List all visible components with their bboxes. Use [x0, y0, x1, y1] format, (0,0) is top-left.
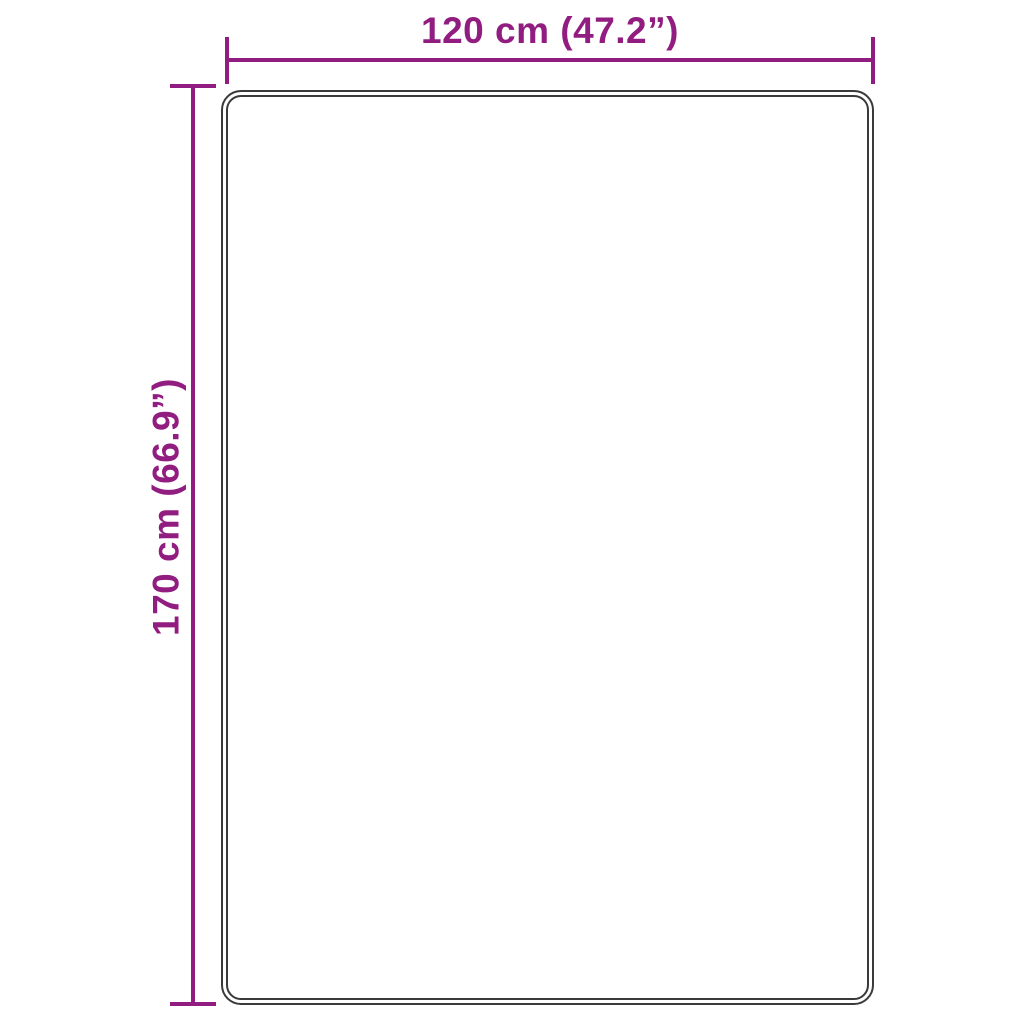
rug-outline [221, 90, 874, 1005]
height-dimension-top-cap [170, 84, 216, 88]
dimension-diagram: 120 cm (47.2”) 170 cm (66.9”) [0, 0, 1024, 1024]
height-dimension-bottom-cap [170, 1002, 216, 1006]
width-dimension-line [227, 58, 873, 62]
rug-outline-inner [226, 95, 869, 1000]
width-label: 120 cm (47.2”) [227, 12, 873, 49]
height-label: 170 cm (66.9”) [148, 378, 185, 636]
height-dimension-line [191, 86, 195, 1004]
